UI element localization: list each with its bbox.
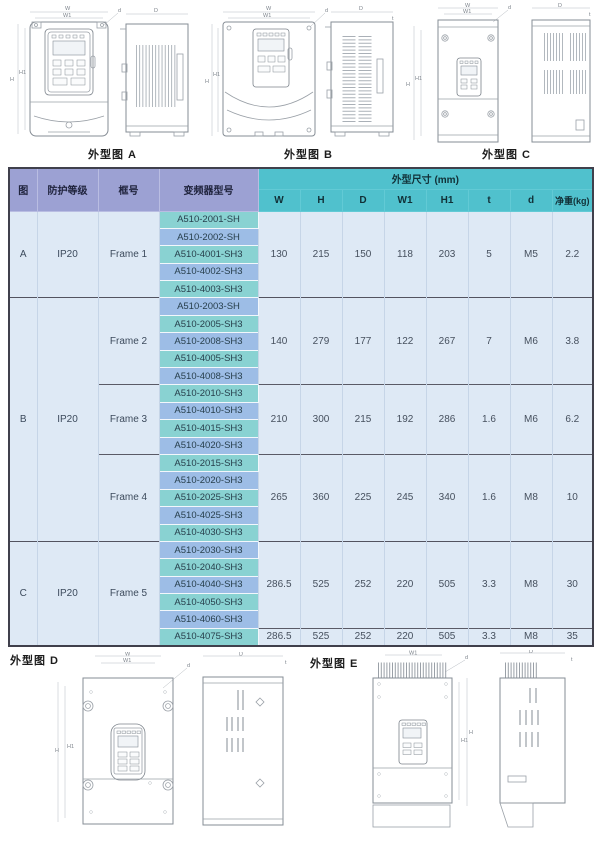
outline-drawing-d: W W1 d H H1 D t [55, 652, 295, 843]
dim-d: 252 [342, 541, 384, 628]
dim-h: 300 [300, 385, 342, 455]
dim-h: 525 [300, 541, 342, 628]
dim-w1: 220 [384, 541, 426, 628]
svg-text:W1: W1 [409, 651, 417, 657]
dim-w1: 245 [384, 454, 426, 541]
svg-text:W: W [65, 6, 71, 12]
outline-drawing-b: W W1 d H H1 D t [203, 4, 399, 151]
svg-text:t: t [571, 657, 573, 663]
dim-screw: M6 [510, 385, 552, 455]
model-cell: A510-4075-SH3 [159, 628, 258, 645]
col-header-w: W [258, 189, 300, 211]
drawing-a-caption: 外型图 A [88, 146, 137, 162]
dim-d: 150 [342, 211, 384, 298]
svg-text:t: t [589, 12, 591, 18]
dim-h: 215 [300, 211, 342, 298]
svg-text:d: d [325, 8, 328, 14]
svg-text:d: d [508, 5, 511, 11]
drawing-d-caption: 外型图 D [10, 652, 59, 668]
dim-t: 1.6 [468, 385, 510, 455]
svg-text:H1: H1 [19, 70, 26, 76]
dim-w1: 122 [384, 298, 426, 385]
model-cell: A510-4002-SH3 [159, 263, 258, 280]
svg-text:D: D [558, 3, 562, 9]
frame-cell: Frame 5 [98, 541, 159, 645]
dim-t: 3.3 [468, 628, 510, 645]
dim-t: 1.6 [468, 454, 510, 541]
model-cell: A510-2020-SH3 [159, 472, 258, 489]
drawing-e-caption: 外型图 E [310, 655, 358, 671]
model-cell: A510-4040-SH3 [159, 576, 258, 593]
dim-h1: 286 [426, 385, 468, 455]
protection-cell: IP20 [37, 298, 98, 541]
dim-screw: M8 [510, 541, 552, 628]
model-cell: A510-2010-SH3 [159, 385, 258, 402]
frame-cell: Frame 2 [98, 298, 159, 385]
figure-cell: B [9, 298, 37, 541]
dim-weight: 30 [552, 541, 593, 628]
svg-text:W1: W1 [463, 9, 471, 15]
datasheet-page: { "drawings": { "caption_a": "外型图 A", "c… [0, 0, 600, 844]
model-cell: A510-2030-SH3 [159, 541, 258, 558]
model-cell: A510-2005-SH3 [159, 315, 258, 332]
dim-h: 279 [300, 298, 342, 385]
dim-d: 225 [342, 454, 384, 541]
model-cell: A510-4050-SH3 [159, 594, 258, 611]
dim-weight: 35 [552, 628, 593, 645]
svg-text:D: D [529, 650, 533, 655]
dim-w: 130 [258, 211, 300, 298]
dim-t: 5 [468, 211, 510, 298]
model-cell: A510-2001-SH [159, 211, 258, 228]
table-row: B IP20 Frame 2 A510-2003-SH 140 279 177 … [9, 298, 593, 315]
dim-weight: 6.2 [552, 385, 593, 455]
col-header-t: t [468, 189, 510, 211]
svg-text:t: t [392, 16, 394, 22]
model-cell: A510-4008-SH3 [159, 368, 258, 385]
dim-w1: 220 [384, 628, 426, 645]
col-header-d: D [342, 189, 384, 211]
svg-text:d: d [465, 655, 468, 661]
dim-w: 286.5 [258, 628, 300, 645]
model-cell: A510-2003-SH [159, 298, 258, 315]
col-header-weight: 净重(kg) [552, 189, 593, 211]
model-cell: A510-4003-SH3 [159, 281, 258, 298]
model-cell: A510-2040-SH3 [159, 559, 258, 576]
model-cell: A510-4001-SH3 [159, 246, 258, 263]
col-header-frame: 框号 [98, 168, 159, 211]
frame-cell: Frame 4 [98, 454, 159, 541]
svg-text:H1: H1 [213, 72, 220, 78]
dim-h1: 505 [426, 541, 468, 628]
dim-d: 252 [342, 628, 384, 645]
col-header-dimensions-group: 外型尺寸 (mm) [258, 168, 593, 189]
model-cell: A510-2025-SH3 [159, 489, 258, 506]
svg-text:H: H [406, 82, 410, 88]
model-cell: A510-4030-SH3 [159, 524, 258, 541]
dim-h: 360 [300, 454, 342, 541]
outline-drawing-e: W1 d H1 H D t [355, 650, 595, 845]
svg-text:t: t [285, 660, 287, 666]
dim-weight: 3.8 [552, 298, 593, 385]
figure-cell: A [9, 211, 37, 298]
col-header-h1: H1 [426, 189, 468, 211]
model-cell: A510-4020-SH3 [159, 437, 258, 454]
dim-w1: 192 [384, 385, 426, 455]
model-cell: A510-4025-SH3 [159, 507, 258, 524]
svg-text:H: H [469, 730, 473, 736]
dim-weight: 10 [552, 454, 593, 541]
dim-screw: M5 [510, 211, 552, 298]
dim-h: 525 [300, 628, 342, 645]
dim-w: 210 [258, 385, 300, 455]
svg-text:d: d [118, 8, 121, 14]
svg-text:W: W [266, 6, 272, 12]
model-cell: A510-4010-SH3 [159, 402, 258, 419]
outline-drawing-c: W W1 d H H1 D t [402, 2, 594, 155]
model-cell: A510-4060-SH3 [159, 611, 258, 628]
svg-text:D: D [359, 6, 363, 12]
svg-text:H: H [205, 79, 209, 85]
col-header-h: H [300, 189, 342, 211]
svg-text:D: D [154, 8, 158, 14]
col-header-w1: W1 [384, 189, 426, 211]
dim-h1: 505 [426, 628, 468, 645]
model-cell: A510-2008-SH3 [159, 333, 258, 350]
dim-screw: M6 [510, 298, 552, 385]
dim-t: 7 [468, 298, 510, 385]
svg-text:H: H [10, 77, 14, 83]
model-cell: A510-4005-SH3 [159, 350, 258, 367]
svg-text:H1: H1 [415, 76, 422, 82]
col-header-screw: d [510, 189, 552, 211]
frame-cell: Frame 1 [98, 211, 159, 298]
dim-screw: M8 [510, 454, 552, 541]
dimension-table: 图 防护等级 框号 变频器型号 外型尺寸 (mm) W H D W1 H1 t … [8, 167, 594, 647]
dim-h1: 340 [426, 454, 468, 541]
table-row: A IP20 Frame 1 A510-2001-SH 130 215 150 … [9, 211, 593, 228]
dim-d: 215 [342, 385, 384, 455]
model-cell: A510-2002-SH [159, 228, 258, 245]
svg-text:d: d [187, 663, 190, 669]
svg-text:W: W [125, 652, 131, 658]
svg-text:W1: W1 [123, 658, 131, 664]
dim-weight: 2.2 [552, 211, 593, 298]
dim-h1: 203 [426, 211, 468, 298]
dim-w: 265 [258, 454, 300, 541]
dim-h1: 267 [426, 298, 468, 385]
dim-d: 177 [342, 298, 384, 385]
frame-cell: Frame 3 [98, 385, 159, 455]
protection-cell: IP20 [37, 211, 98, 298]
dim-screw: M8 [510, 628, 552, 645]
figure-cell: C [9, 541, 37, 645]
dim-w: 286.5 [258, 541, 300, 628]
col-header-figure: 图 [9, 168, 37, 211]
table-row: C IP20 Frame 5 A510-2030-SH3 286.5 525 2… [9, 541, 593, 558]
svg-text:H1: H1 [67, 744, 74, 750]
outline-drawing-a: W W1 d H H1 D [8, 4, 200, 151]
model-cell: A510-4015-SH3 [159, 420, 258, 437]
dim-w1: 118 [384, 211, 426, 298]
svg-text:W1: W1 [63, 13, 71, 19]
drawing-b-caption: 外型图 B [284, 146, 333, 162]
col-header-protection: 防护等级 [37, 168, 98, 211]
svg-text:D: D [239, 652, 243, 658]
model-cell: A510-2015-SH3 [159, 454, 258, 471]
drawing-c-caption: 外型图 C [482, 146, 531, 162]
col-header-model: 变频器型号 [159, 168, 258, 211]
protection-cell: IP20 [37, 541, 98, 645]
dim-t: 3.3 [468, 541, 510, 628]
svg-text:W1: W1 [263, 13, 271, 19]
svg-text:H: H [55, 748, 59, 754]
dim-w: 140 [258, 298, 300, 385]
